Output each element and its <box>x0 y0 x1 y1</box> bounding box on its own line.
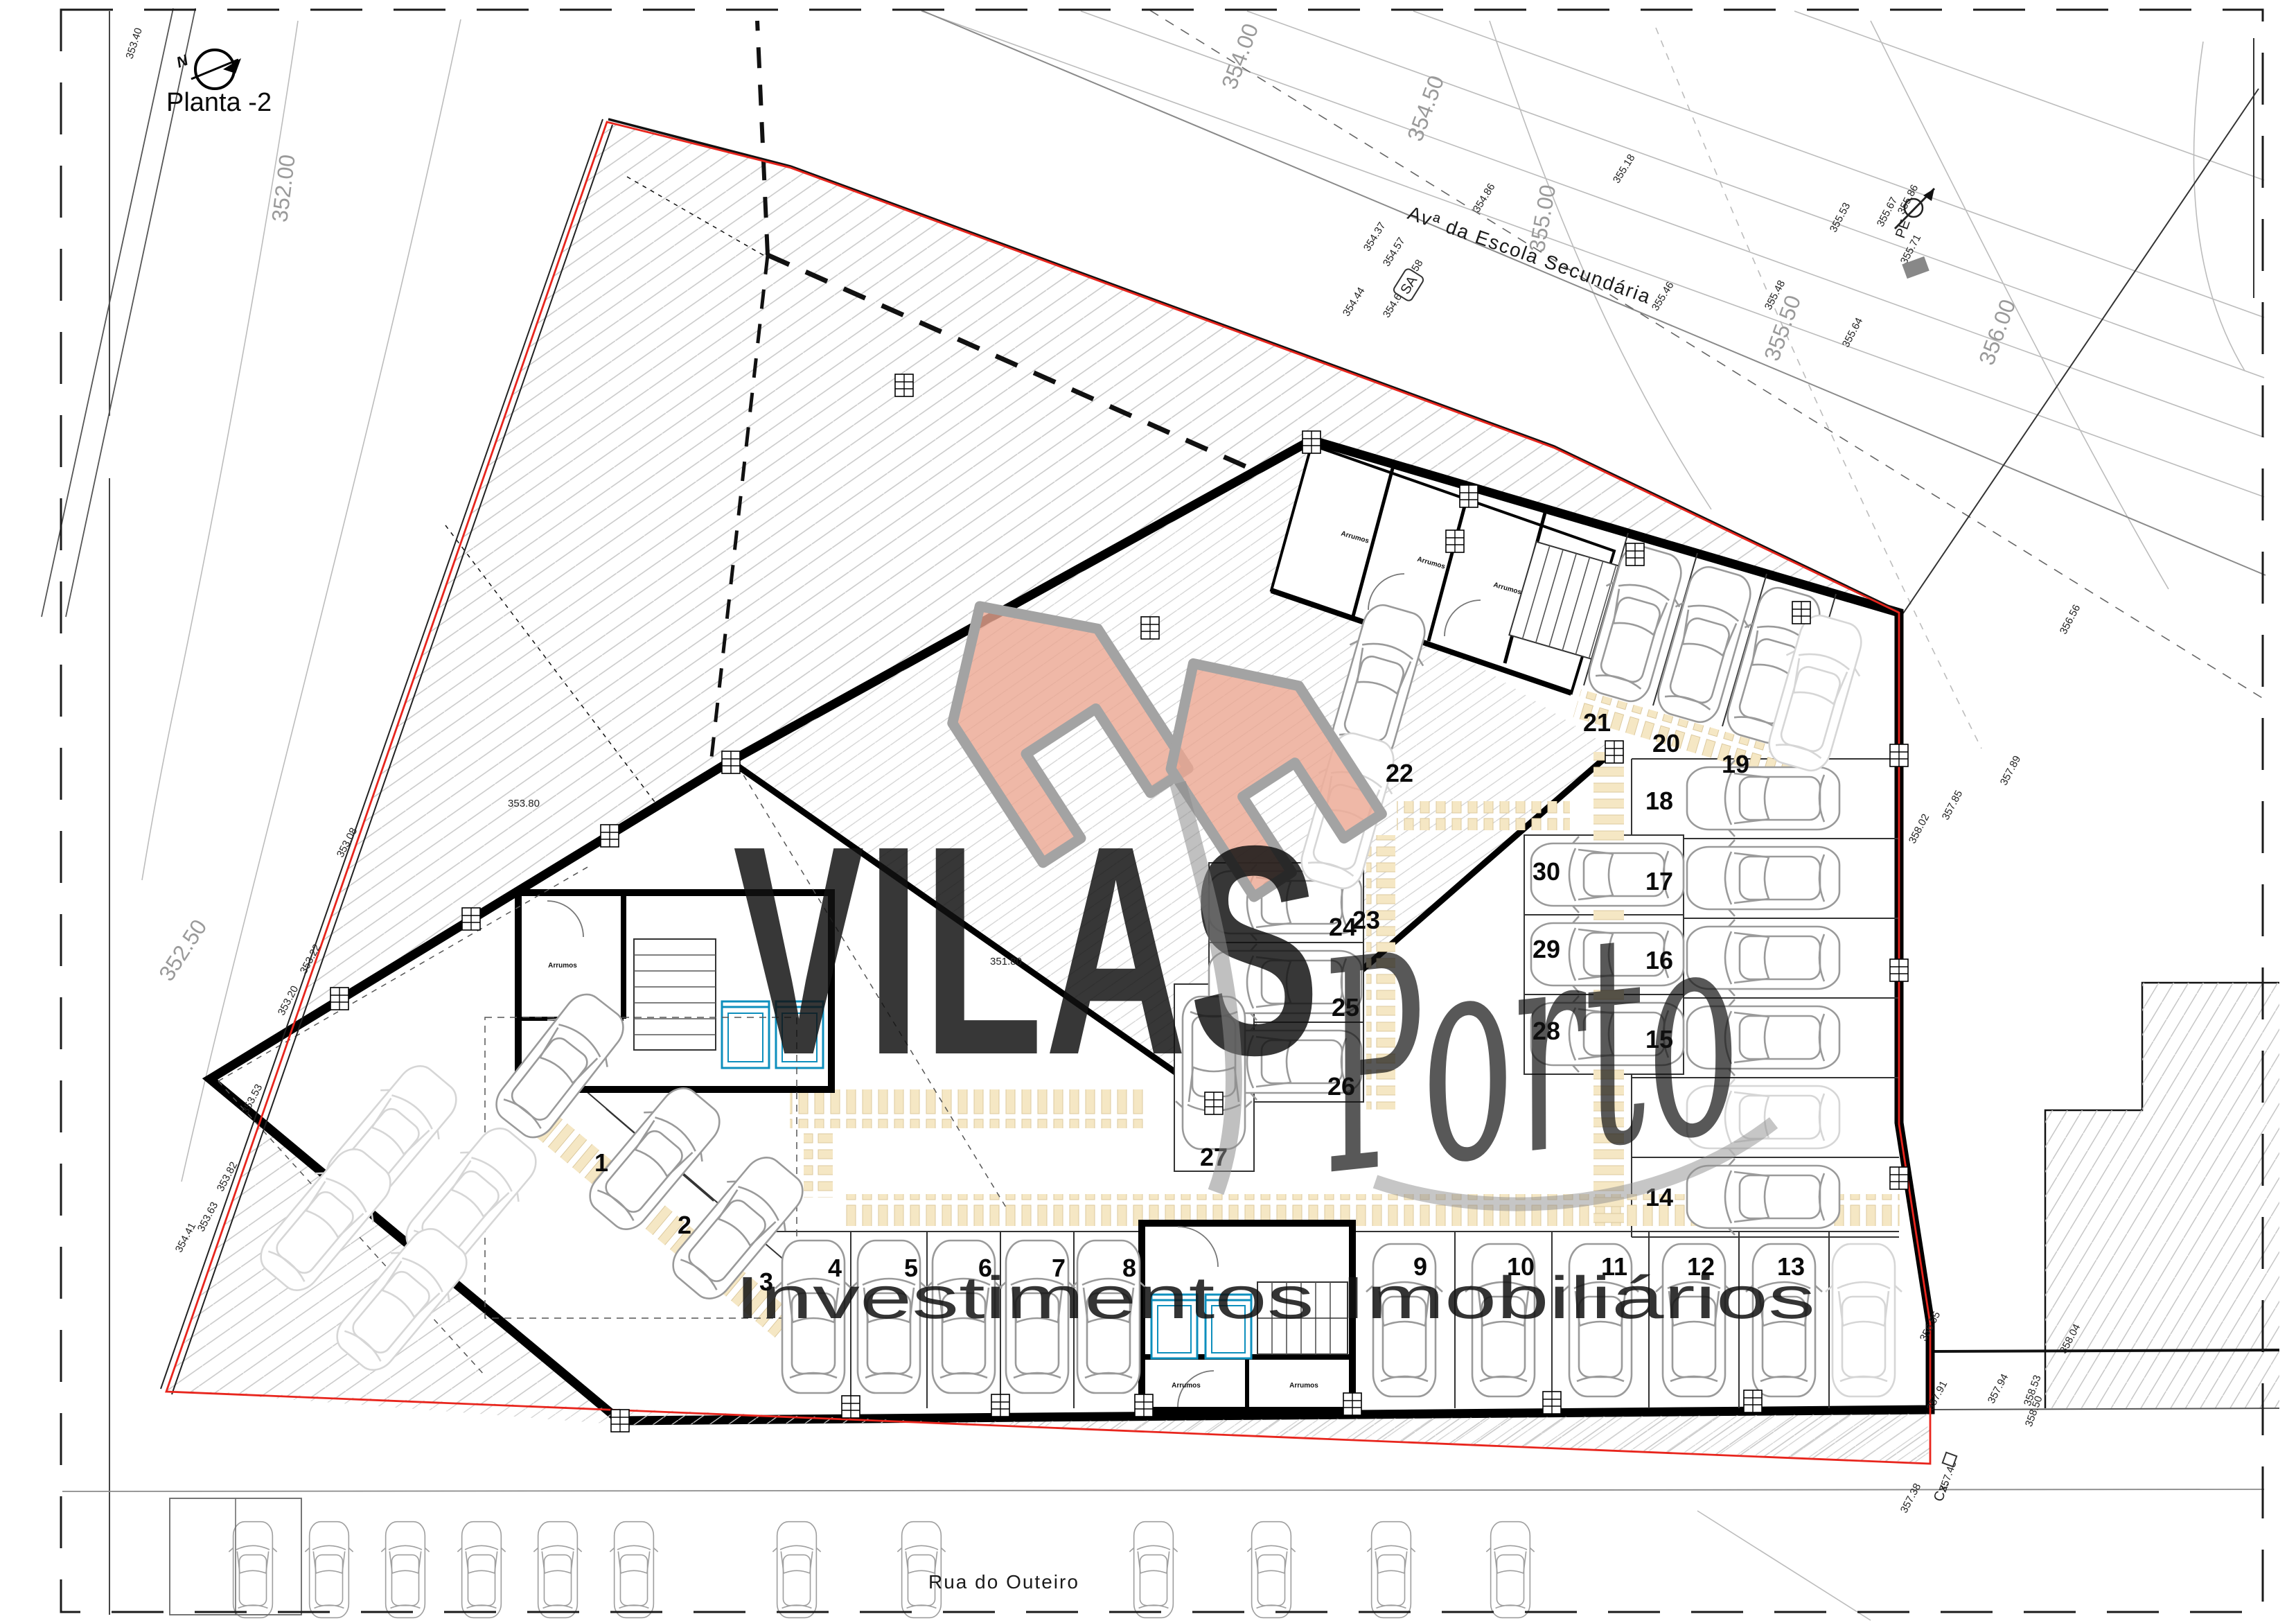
spot-elevation: 353.80 <box>508 798 540 809</box>
room-label: Arrumos <box>548 962 577 970</box>
parking-number: 22 <box>1386 759 1413 787</box>
plan-drawing: 1 2 3 4 5 6 7 8 9 10 11 12 13 14 15 16 1… <box>0 0 2296 1621</box>
parking-number: 19 <box>1722 750 1749 778</box>
plan-title: Planta -2 <box>166 88 272 117</box>
parking-number: 18 <box>1645 787 1673 815</box>
watermark-tagline: Investimentos Imobiliários <box>734 1265 1815 1331</box>
watermark-script: Porto <box>1303 859 1754 1240</box>
west-stairs <box>634 939 716 1050</box>
parking-number: 21 <box>1583 708 1611 737</box>
street-name-bottom: Rua do Outeiro <box>928 1571 1079 1593</box>
parking-number: 1 <box>594 1148 608 1177</box>
room-label: Arrumos <box>1172 1382 1201 1390</box>
parking-number: 2 <box>678 1211 691 1239</box>
floor-plan-sheet: 1 2 3 4 5 6 7 8 9 10 11 12 13 14 15 16 1… <box>0 0 2296 1621</box>
room-label: Arrumos <box>1289 1382 1318 1390</box>
parking-number: 20 <box>1652 729 1680 757</box>
